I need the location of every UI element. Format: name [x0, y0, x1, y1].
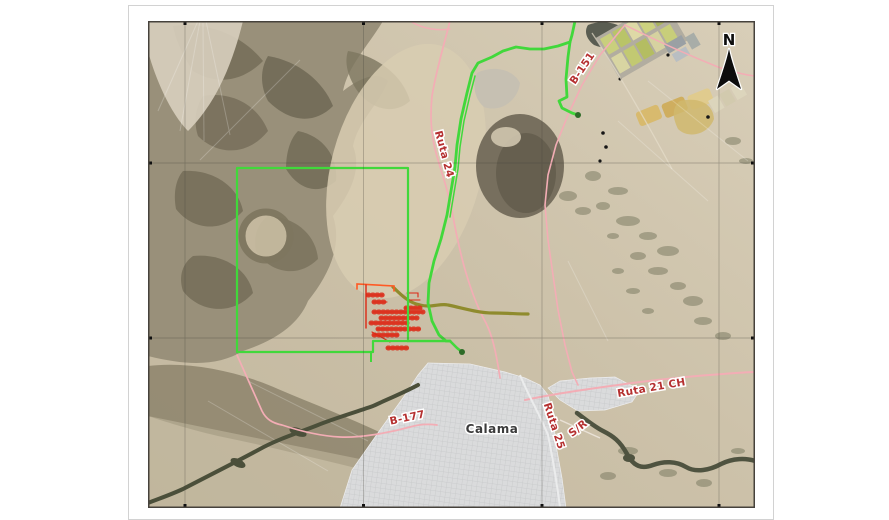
city-label-calama: Calama — [466, 422, 519, 436]
north-label: N — [723, 31, 736, 49]
map-canvas: Ruta 24 B-151 Ruta 21 CH Ruta 25 S/R B-1… — [148, 21, 755, 508]
route-endpoint-south — [459, 349, 465, 355]
satellite-map-page: Ruta 24 B-151 Ruta 21 CH Ruta 25 S/R B-1… — [0, 0, 889, 520]
satellite-map: Ruta 24 B-151 Ruta 21 CH Ruta 25 S/R B-1… — [148, 21, 755, 508]
route-endpoint-b151 — [575, 112, 581, 118]
